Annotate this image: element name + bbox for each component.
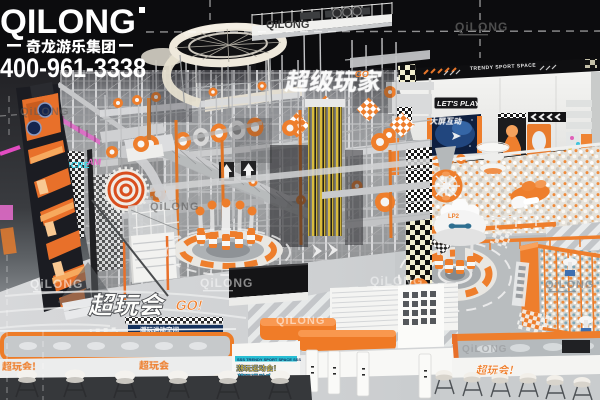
- svg-text:QiLONG: QiLONG: [20, 106, 69, 118]
- svg-text:QILONG: QILONG: [0, 3, 136, 41]
- svg-text:QiLONG: QiLONG: [150, 201, 199, 213]
- svg-text:QiLONG: QiLONG: [545, 279, 594, 291]
- svg-text:QiLONG: QiLONG: [276, 315, 325, 327]
- svg-text:QiLONG: QiLONG: [200, 276, 253, 290]
- svg-text:QiLONG: QiLONG: [455, 20, 508, 34]
- svg-text:LP2: LP2: [448, 214, 460, 220]
- svg-text:SSS TRENDY SPORT SPACE SSS: SSS TRENDY SPORT SPACE SSS: [237, 357, 301, 362]
- svg-text:GO!: GO!: [174, 298, 204, 314]
- svg-text:QiLONG: QiLONG: [30, 277, 83, 291]
- svg-text:AM: AM: [87, 157, 102, 167]
- svg-text:QiLONG: QiLONG: [462, 344, 507, 355]
- svg-text:QiLONG: QiLONG: [370, 274, 423, 288]
- svg-text:GO: GO: [354, 69, 370, 79]
- svg-text:QiLONG: QiLONG: [266, 19, 309, 31]
- svg-text:LET'S PLAY: LET'S PLAY: [437, 99, 480, 108]
- svg-text:400-961-3338: 400-961-3338: [0, 53, 146, 83]
